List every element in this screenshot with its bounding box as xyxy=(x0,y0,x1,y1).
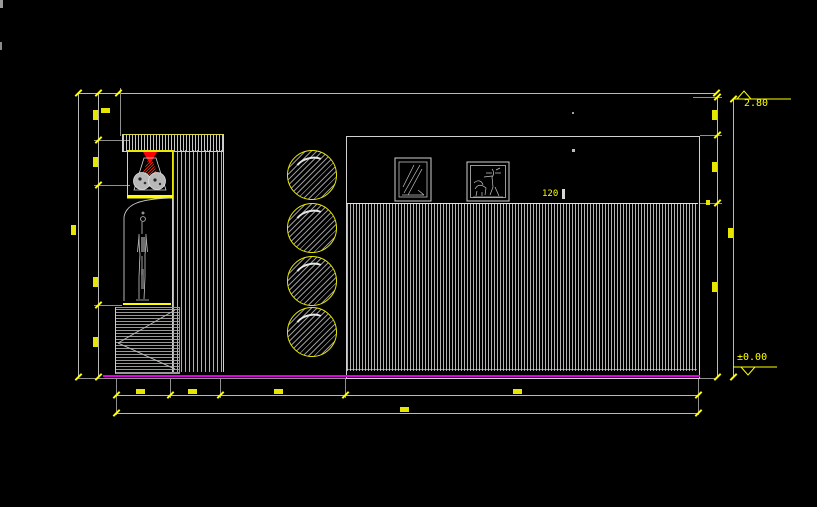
dim-text-blob[interactable] xyxy=(101,108,110,113)
dim-text-blob[interactable] xyxy=(513,389,522,394)
picture-frame-2[interactable] xyxy=(466,161,510,202)
niche-sill-line xyxy=(123,303,171,305)
picture-frame-1[interactable] xyxy=(394,157,432,202)
round-mirror-2[interactable] xyxy=(287,203,337,253)
dim-tick xyxy=(695,409,703,417)
paneling-dim-text[interactable]: 120 xyxy=(542,190,558,199)
red-lamp-artwork[interactable] xyxy=(127,149,174,199)
dimension-line-bottom-2[interactable] xyxy=(116,413,698,414)
dim-tick xyxy=(95,373,103,381)
extension-line xyxy=(120,88,121,136)
screen-artifact xyxy=(0,42,2,50)
dim-tick xyxy=(714,373,722,381)
dim-text-blob[interactable] xyxy=(93,337,98,347)
dim-text-blob[interactable] xyxy=(93,277,98,287)
dim-text-blob[interactable] xyxy=(136,389,145,394)
dimension-line-left-outer[interactable] xyxy=(78,93,79,378)
dim-text-blob[interactable] xyxy=(400,407,409,412)
dim-tick xyxy=(75,373,83,381)
dimension-line-right-outer[interactable] xyxy=(733,99,734,377)
dimension-line-left-inner[interactable] xyxy=(98,93,99,378)
dim-text-blob[interactable] xyxy=(274,389,283,394)
dim-text-blob[interactable] xyxy=(71,225,76,235)
dim-text-blob[interactable] xyxy=(712,282,717,292)
round-mirror-3[interactable] xyxy=(287,256,337,306)
cad-viewport[interactable]: 2.80 ±0.00 xyxy=(0,0,817,507)
wainscot-bottom-line xyxy=(347,369,697,370)
level-marker-top-icon xyxy=(729,87,795,102)
right-slat-wainscot[interactable] xyxy=(347,204,697,371)
dim-text-blob[interactable] xyxy=(93,110,98,120)
human-figure[interactable] xyxy=(131,211,165,306)
round-mirror-4[interactable] xyxy=(287,307,337,357)
dim-text-blob[interactable] xyxy=(706,200,710,205)
round-mirror-1[interactable] xyxy=(287,150,337,200)
level-marker-bottom-icon xyxy=(729,364,795,379)
dim-text-blob[interactable] xyxy=(188,389,197,394)
floor-line[interactable] xyxy=(103,375,700,377)
wainscot-top-line xyxy=(346,203,698,204)
dim-text-blob[interactable] xyxy=(712,110,717,120)
dim-text-blob[interactable] xyxy=(712,162,717,172)
level-label-bottom[interactable]: ±0.00 xyxy=(737,353,767,363)
node-dot xyxy=(572,112,574,114)
screen-artifact xyxy=(0,0,3,8)
dimension-line-top[interactable] xyxy=(78,93,717,94)
cabinet-diagonals xyxy=(115,307,178,372)
dimension-line-bottom-1[interactable] xyxy=(116,395,698,396)
text-cursor-mark xyxy=(562,189,565,199)
node-dot xyxy=(572,149,575,152)
dim-text-blob[interactable] xyxy=(728,228,733,238)
dim-text-blob[interactable] xyxy=(93,157,98,167)
dimension-line-right-inner[interactable] xyxy=(717,97,718,378)
